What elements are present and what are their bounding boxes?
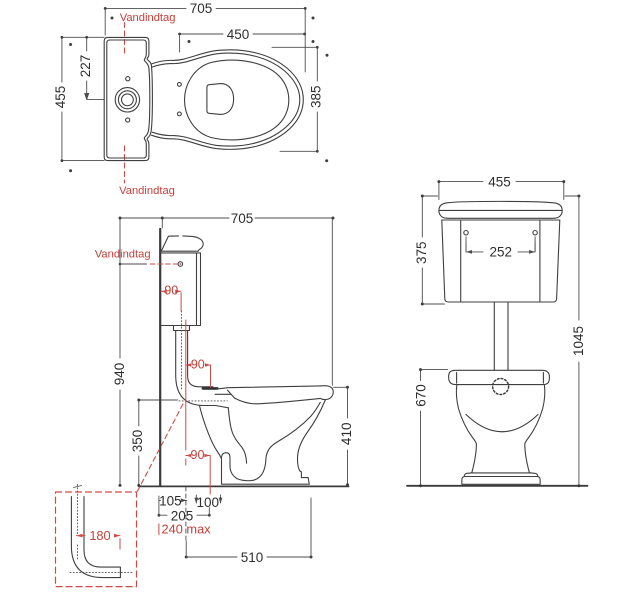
svg-text:180: 180 [89, 528, 110, 543]
svg-text:385: 385 [309, 85, 324, 108]
svg-text:90: 90 [191, 357, 205, 371]
svg-text:670: 670 [413, 384, 428, 407]
svg-text:90: 90 [164, 284, 178, 298]
svg-text:90: 90 [191, 448, 205, 462]
svg-text:450: 450 [227, 27, 250, 42]
svg-text:Vandindtag: Vandindtag [119, 185, 175, 197]
svg-text:350: 350 [130, 430, 145, 453]
svg-text:455: 455 [53, 86, 68, 109]
svg-text:105: 105 [159, 494, 182, 509]
svg-text:705: 705 [231, 211, 254, 226]
svg-text:455: 455 [488, 174, 511, 189]
svg-text:375: 375 [414, 241, 429, 264]
svg-text:Vandindtag: Vandindtag [120, 12, 176, 24]
svg-text:Vandindtag: Vandindtag [95, 249, 151, 261]
svg-text:410: 410 [339, 423, 354, 446]
svg-text:227: 227 [78, 55, 93, 78]
svg-text:510: 510 [241, 550, 264, 565]
svg-text:705: 705 [190, 1, 213, 16]
svg-text:1045: 1045 [571, 326, 586, 356]
svg-text:252: 252 [490, 245, 513, 260]
svg-text:100: 100 [197, 495, 220, 510]
svg-text:940: 940 [112, 363, 127, 386]
